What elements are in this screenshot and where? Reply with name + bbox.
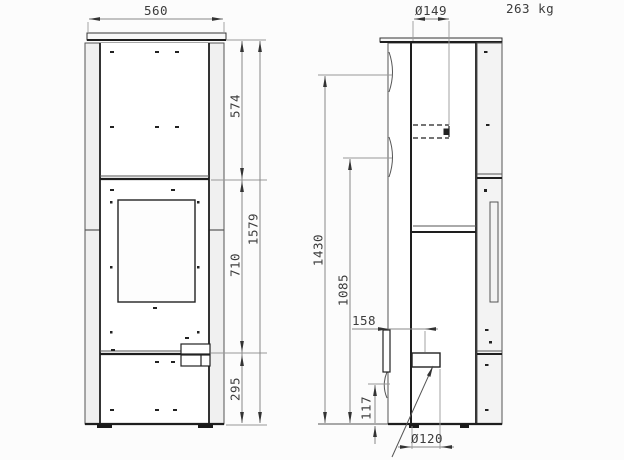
dim-flue-height: 1430 [310,75,392,423]
front-top-plate [87,33,226,40]
side-front-foot [409,424,419,428]
front-lower-bracket [383,330,390,372]
side-rear-foot [460,424,469,428]
dim-upper-section-label: 574 [227,94,242,118]
door-handle [181,344,210,366]
dim-door-section-label: 710 [227,253,242,277]
front-left-foot [97,424,112,428]
front-view [85,33,226,428]
dim-flue-diameter-label: Ø149 [415,3,447,18]
door-glass-window [118,200,195,302]
technical-drawing-page: 560 574 1579 710 295 [0,0,624,460]
front-left-side-panel [85,43,100,424]
dim-width-label: 560 [144,3,168,18]
arrowhead [89,17,100,21]
dim-outlet-height: 1085 [335,158,392,423]
dim-air-height-label: 117 [358,396,373,420]
dim-width: 560 [88,3,224,32]
dim-flue-height-label: 1430 [310,234,325,266]
stove-dimension-drawing: 560 574 1579 710 295 [0,0,624,460]
side-view [318,38,502,428]
front-right-foot [198,424,213,428]
weight-label: 263 kg [506,1,554,16]
dim-air-offset-label: 158 [352,313,376,328]
dim-outlet-height-label: 1085 [335,274,350,306]
arrowhead [212,17,223,21]
air-inlet-stub [412,353,440,367]
front-right-side-panel [209,43,224,424]
dim-total-height-label: 1579 [245,213,260,245]
dim-base-section-label: 295 [227,377,242,401]
dim-air-diameter-label: Ø120 [411,431,443,446]
front-curve-lower [384,372,387,398]
